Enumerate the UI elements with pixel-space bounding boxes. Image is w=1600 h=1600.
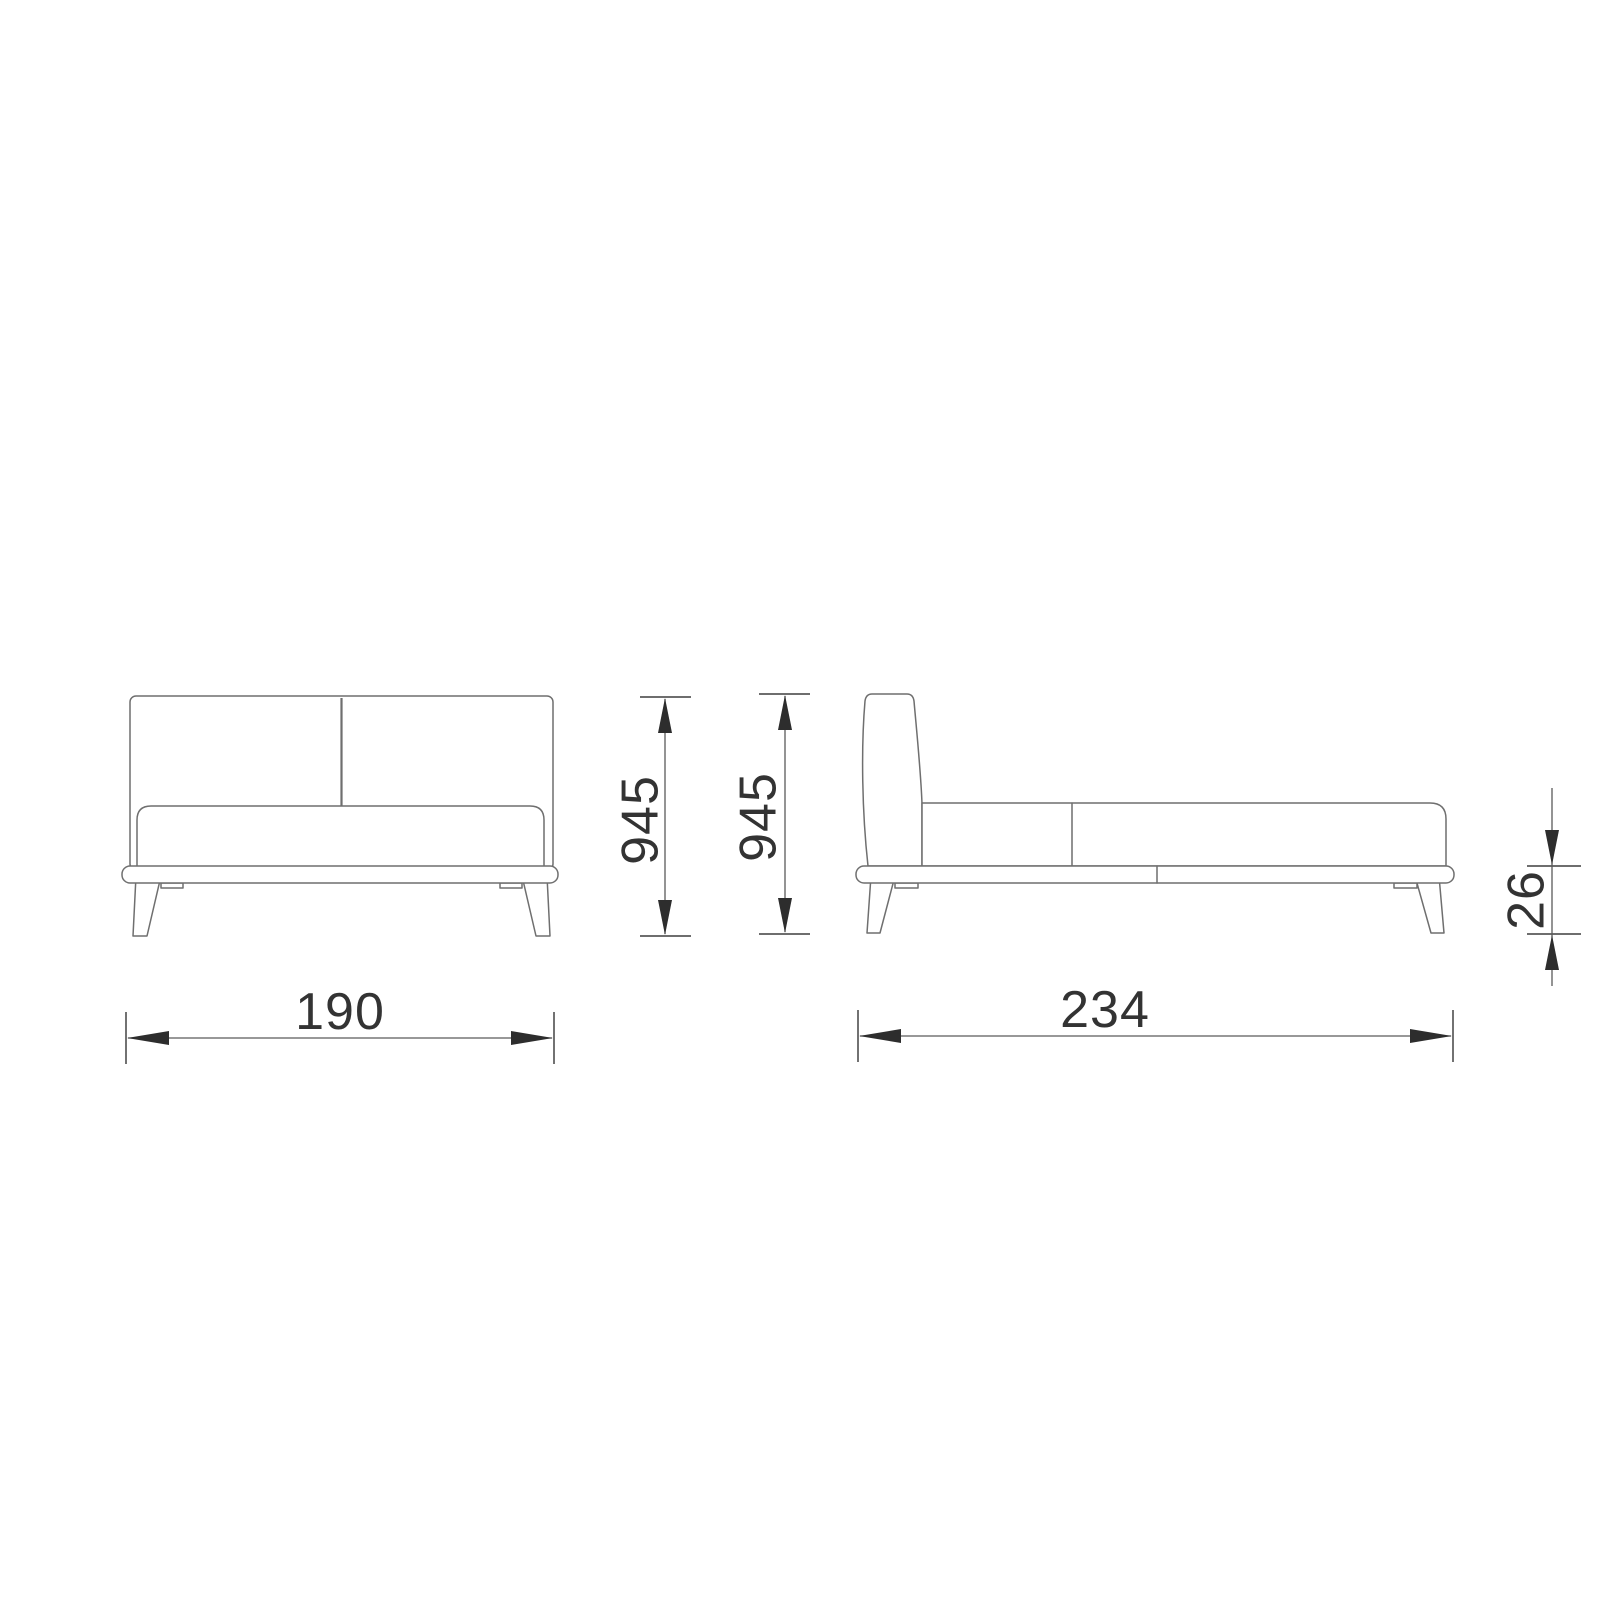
dim-front-width-label: 190 <box>295 983 385 1041</box>
dim-side-length-arrow-right <box>1410 1029 1452 1043</box>
dim-front-width-arrow-right <box>511 1031 553 1045</box>
side-front-leg <box>867 876 895 933</box>
dim-front-height-arrow-up <box>658 698 672 733</box>
dim-side-height-arrow-down <box>778 898 792 933</box>
dim-front-width: 190 <box>126 983 554 1064</box>
dim-side-length: 234 <box>858 981 1453 1062</box>
bed-side-view <box>856 694 1454 933</box>
side-base-rail <box>856 866 1454 883</box>
dim-base-height: 26 <box>1498 788 1581 986</box>
dim-front-width-arrow-left <box>127 1031 169 1045</box>
dim-front-height: 945 <box>612 697 691 936</box>
dim-side-length-arrow-left <box>859 1029 901 1043</box>
bed-dimension-diagram: 945 945 190 234 <box>0 0 1600 1600</box>
side-rear-leg <box>1415 876 1444 933</box>
dim-base-height-arrow-up <box>1545 935 1559 970</box>
dim-side-height-label: 945 <box>730 772 788 862</box>
front-base-rail <box>122 866 558 883</box>
dim-side-height: 945 <box>730 694 810 934</box>
dim-side-height-arrow-up <box>778 695 792 730</box>
dim-base-height-arrow-down <box>1545 830 1559 865</box>
dim-base-height-label: 26 <box>1498 870 1556 930</box>
dim-side-length-label: 234 <box>1060 981 1150 1039</box>
dim-front-height-arrow-down <box>658 900 672 935</box>
bed-front-view <box>122 696 558 936</box>
front-left-leg <box>133 876 161 936</box>
side-headboard <box>863 694 922 866</box>
drawing-canvas: 945 945 190 234 <box>0 0 1600 1600</box>
front-mattress <box>137 806 544 868</box>
side-mattress <box>922 803 1446 866</box>
front-right-leg <box>522 876 550 936</box>
dim-front-height-label: 945 <box>612 775 670 865</box>
